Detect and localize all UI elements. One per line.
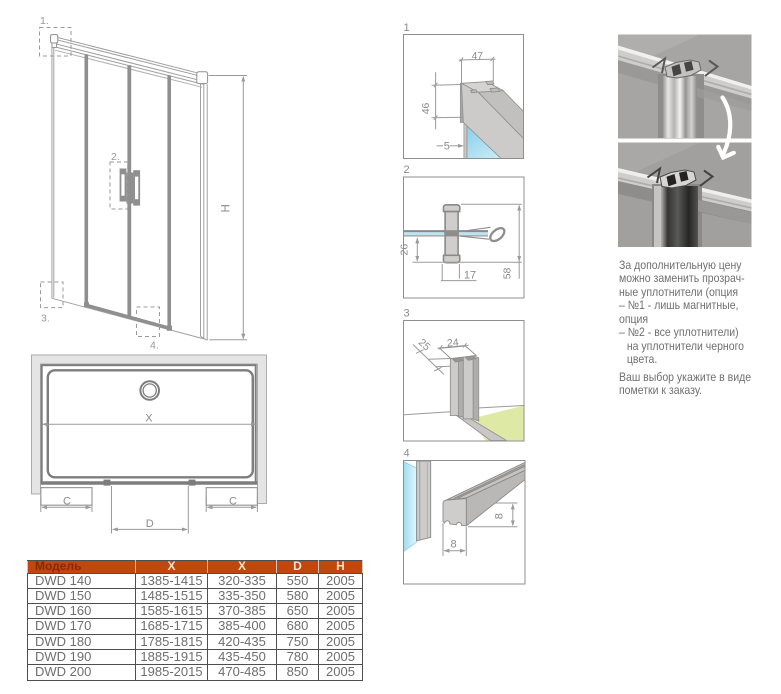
- svg-text:X: X: [145, 413, 153, 425]
- svg-text:26: 26: [398, 244, 410, 256]
- svg-text:1: 1: [404, 22, 410, 34]
- svg-text:8: 8: [451, 539, 457, 551]
- svg-text:1.: 1.: [40, 15, 49, 27]
- svg-text:8: 8: [494, 513, 506, 519]
- svg-text:2: 2: [404, 164, 410, 176]
- svg-text:5: 5: [444, 141, 450, 153]
- svg-text:4.: 4.: [150, 340, 159, 352]
- svg-text:46: 46: [420, 102, 432, 114]
- svg-text:24: 24: [447, 337, 460, 350]
- svg-text:47: 47: [472, 51, 484, 62]
- svg-text:4: 4: [404, 448, 410, 460]
- svg-text:C: C: [229, 496, 237, 508]
- svg-text:C: C: [63, 496, 71, 508]
- svg-text:17: 17: [464, 270, 476, 282]
- svg-text:58: 58: [501, 267, 513, 279]
- svg-text:H: H: [221, 204, 233, 212]
- svg-text:3.: 3.: [41, 313, 50, 325]
- svg-text:2.: 2.: [111, 151, 120, 163]
- svg-text:3: 3: [404, 308, 410, 320]
- svg-text:D: D: [146, 518, 154, 530]
